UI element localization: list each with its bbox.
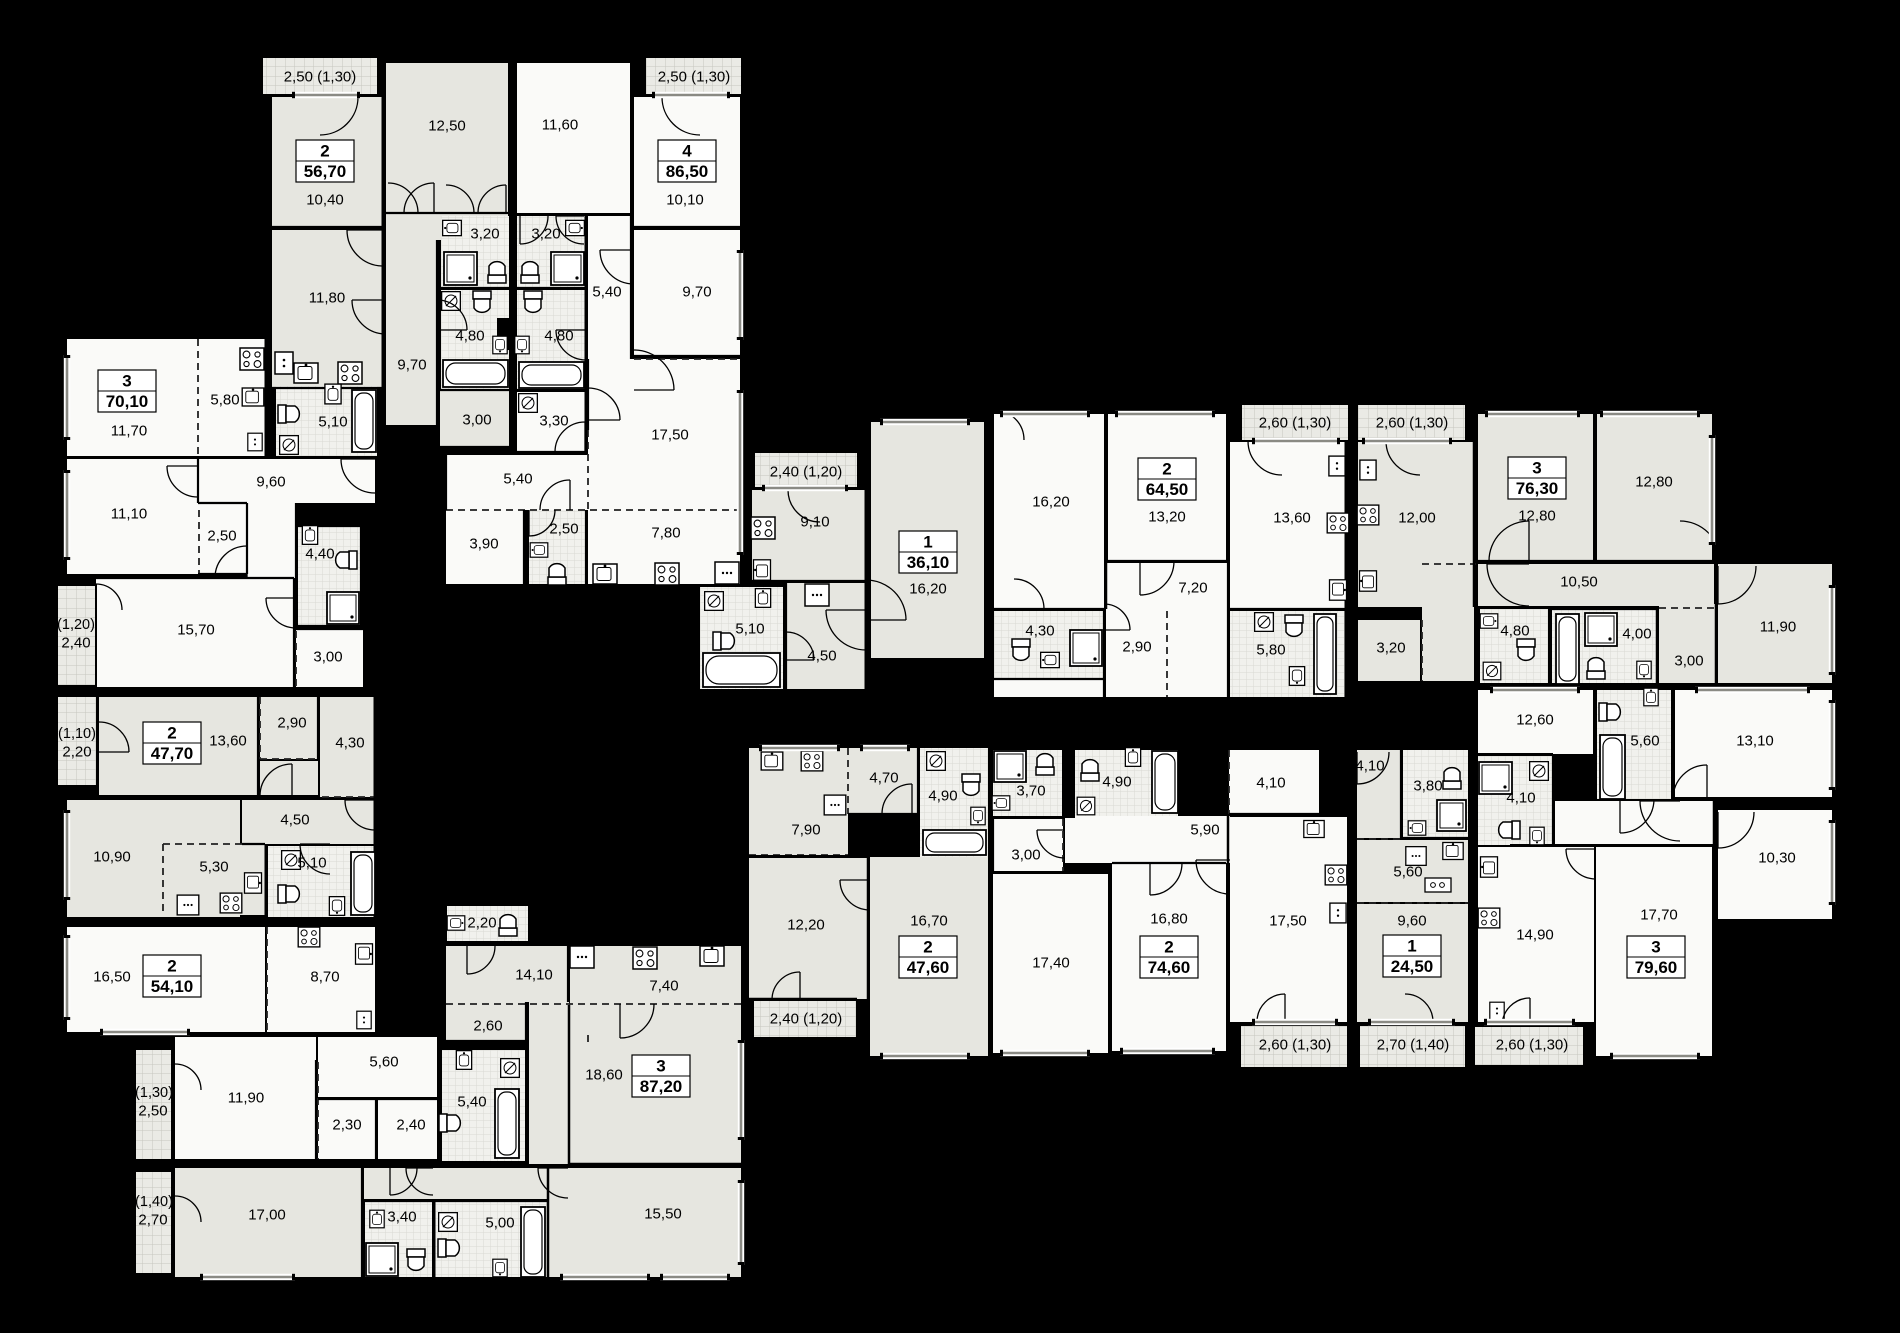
- svg-text:64,50: 64,50: [1146, 480, 1189, 499]
- svg-text:87,20: 87,20: [640, 1077, 683, 1096]
- svg-text:5,10: 5,10: [735, 620, 764, 637]
- svg-text:2: 2: [1164, 938, 1173, 957]
- svg-text:9,60: 9,60: [256, 473, 285, 490]
- svg-text:2,50 (1,30): 2,50 (1,30): [658, 68, 731, 85]
- svg-text:12,80: 12,80: [1635, 473, 1673, 490]
- svg-text:4,50: 4,50: [280, 811, 309, 828]
- svg-text:17,70: 17,70: [1640, 906, 1678, 923]
- svg-text:79,60: 79,60: [1635, 958, 1678, 977]
- svg-text:2: 2: [167, 724, 176, 743]
- svg-text:5,10: 5,10: [297, 854, 326, 871]
- svg-text:86,50: 86,50: [666, 162, 709, 181]
- svg-text:17,50: 17,50: [1269, 912, 1307, 929]
- svg-text:5,60: 5,60: [1393, 863, 1422, 880]
- svg-text:(1,40): (1,40): [135, 1194, 173, 1210]
- svg-text:11,80: 11,80: [309, 289, 345, 306]
- svg-text:(1,20): (1,20): [57, 617, 95, 633]
- svg-text:3,20: 3,20: [531, 225, 560, 242]
- svg-text:2: 2: [1162, 460, 1171, 479]
- svg-text:5,90: 5,90: [1190, 821, 1219, 838]
- svg-text:12,00: 12,00: [1398, 509, 1436, 526]
- svg-text:12,80: 12,80: [1518, 507, 1556, 524]
- svg-text:5,10: 5,10: [318, 413, 347, 430]
- svg-text:15,50: 15,50: [644, 1205, 682, 1222]
- svg-text:2,20: 2,20: [62, 743, 91, 760]
- svg-text:12,60: 12,60: [1516, 711, 1554, 728]
- svg-text:2,40: 2,40: [396, 1116, 425, 1133]
- svg-text:2,60 (1,30): 2,60 (1,30): [1496, 1036, 1569, 1053]
- svg-text:12,50: 12,50: [428, 117, 466, 134]
- svg-text:10,10: 10,10: [666, 191, 704, 208]
- svg-text:2,60: 2,60: [473, 1017, 502, 1034]
- svg-text:4,10: 4,10: [1506, 789, 1535, 806]
- svg-text:10,30: 10,30: [1758, 849, 1796, 866]
- svg-text:3,00: 3,00: [462, 411, 491, 428]
- svg-text:4: 4: [682, 142, 692, 161]
- svg-text:13,20: 13,20: [1148, 508, 1186, 525]
- svg-text:17,40: 17,40: [1032, 954, 1070, 971]
- svg-text:3: 3: [122, 372, 131, 391]
- svg-text:24,50: 24,50: [1391, 957, 1434, 976]
- svg-text:9,60: 9,60: [1397, 912, 1426, 929]
- svg-text:7,90: 7,90: [791, 821, 820, 838]
- svg-text:3,90: 3,90: [469, 535, 498, 552]
- svg-text:4,30: 4,30: [335, 734, 364, 751]
- svg-text:2,90: 2,90: [277, 714, 306, 731]
- svg-text:8,70: 8,70: [310, 968, 339, 985]
- svg-text:2,50: 2,50: [207, 527, 236, 544]
- svg-text:4,10: 4,10: [1256, 774, 1285, 791]
- svg-text:11,70: 11,70: [111, 422, 147, 439]
- svg-text:17,00: 17,00: [248, 1206, 286, 1223]
- svg-text:3,20: 3,20: [470, 225, 499, 242]
- svg-text:3,00: 3,00: [313, 648, 342, 665]
- svg-text:4,50: 4,50: [807, 647, 836, 664]
- svg-text:3,00: 3,00: [1674, 652, 1703, 669]
- svg-text:2,20: 2,20: [467, 914, 496, 931]
- svg-text:13,60: 13,60: [209, 732, 247, 749]
- svg-text:2,40: 2,40: [61, 634, 90, 651]
- svg-text:76,30: 76,30: [1516, 479, 1559, 498]
- svg-text:9,70: 9,70: [397, 356, 426, 373]
- svg-text:(1,30): (1,30): [135, 1085, 173, 1101]
- svg-text:17,50: 17,50: [651, 426, 689, 443]
- svg-text:3: 3: [656, 1057, 665, 1076]
- svg-text:2,50 (1,30): 2,50 (1,30): [284, 68, 357, 85]
- svg-text:9,70: 9,70: [682, 283, 711, 300]
- svg-text:2: 2: [167, 957, 176, 976]
- svg-text:16,70: 16,70: [910, 912, 948, 929]
- svg-text:3,30: 3,30: [539, 412, 568, 429]
- svg-text:5,40: 5,40: [503, 470, 532, 487]
- svg-text:16,80: 16,80: [1150, 910, 1188, 927]
- svg-text:4,40: 4,40: [305, 545, 334, 562]
- svg-text:3,80: 3,80: [1413, 777, 1442, 794]
- svg-text:3,20: 3,20: [1376, 639, 1405, 656]
- svg-text:5,80: 5,80: [1256, 641, 1285, 658]
- svg-text:4,70: 4,70: [869, 769, 898, 786]
- svg-text:4,90: 4,90: [1102, 773, 1131, 790]
- svg-text:5,00: 5,00: [485, 1214, 514, 1231]
- svg-text:13,10: 13,10: [1736, 732, 1774, 749]
- svg-text:2,90: 2,90: [1122, 638, 1151, 655]
- svg-text:10,50: 10,50: [1560, 573, 1598, 590]
- svg-text:2: 2: [923, 938, 932, 957]
- svg-text:4,80: 4,80: [1500, 622, 1529, 639]
- svg-text:5,60: 5,60: [369, 1053, 398, 1070]
- svg-text:2,30: 2,30: [332, 1116, 361, 1133]
- svg-text:5,60: 5,60: [1630, 732, 1659, 749]
- svg-text:74,60: 74,60: [1148, 958, 1191, 977]
- svg-text:18,60: 18,60: [585, 1066, 623, 1083]
- svg-text:11,90: 11,90: [1760, 618, 1796, 635]
- svg-text:2,40 (1,20): 2,40 (1,20): [770, 463, 843, 480]
- svg-text:3,70: 3,70: [1016, 782, 1045, 799]
- svg-text:16,50: 16,50: [93, 968, 131, 985]
- svg-text:11,10: 11,10: [111, 505, 147, 522]
- svg-text:4,80: 4,80: [455, 327, 484, 344]
- svg-text:4,80: 4,80: [544, 327, 573, 344]
- svg-text:7,40: 7,40: [649, 977, 678, 994]
- svg-text:16,20: 16,20: [909, 580, 947, 597]
- svg-text:5,40: 5,40: [457, 1093, 486, 1110]
- svg-text:2,60 (1,30): 2,60 (1,30): [1259, 1036, 1332, 1053]
- svg-text:16,20: 16,20: [1032, 493, 1070, 510]
- svg-text:10,90: 10,90: [93, 848, 131, 865]
- svg-text:4,90: 4,90: [928, 787, 957, 804]
- svg-text:3: 3: [1651, 938, 1660, 957]
- svg-text:70,10: 70,10: [106, 392, 149, 411]
- svg-text:2,60 (1,30): 2,60 (1,30): [1259, 414, 1332, 431]
- svg-text:13,60: 13,60: [1273, 509, 1311, 526]
- svg-text:7,20: 7,20: [1178, 579, 1207, 596]
- svg-text:14,90: 14,90: [1516, 926, 1554, 943]
- svg-text:9,10: 9,10: [800, 513, 829, 530]
- svg-text:5,30: 5,30: [199, 858, 228, 875]
- svg-text:11,60: 11,60: [542, 116, 578, 133]
- svg-text:54,10: 54,10: [151, 977, 194, 996]
- svg-text:2,70 (1,40): 2,70 (1,40): [1377, 1036, 1450, 1053]
- svg-text:4,30: 4,30: [1025, 622, 1054, 639]
- svg-text:3,40: 3,40: [387, 1208, 416, 1225]
- svg-text:2: 2: [320, 142, 329, 161]
- svg-text:1: 1: [923, 533, 932, 552]
- svg-text:12,20: 12,20: [787, 916, 825, 933]
- svg-text:10,40: 10,40: [306, 191, 344, 208]
- svg-text:5,40: 5,40: [592, 283, 621, 300]
- svg-text:3,00: 3,00: [1011, 846, 1040, 863]
- svg-text:7,80: 7,80: [651, 524, 680, 541]
- svg-text:1: 1: [1407, 937, 1416, 956]
- svg-text:5,80: 5,80: [210, 391, 239, 408]
- svg-text:2,70: 2,70: [138, 1211, 167, 1228]
- svg-text:(1,10): (1,10): [58, 726, 96, 742]
- svg-text:47,70: 47,70: [151, 744, 194, 763]
- svg-text:2,50: 2,50: [138, 1102, 167, 1119]
- svg-text:4,10: 4,10: [1355, 757, 1384, 774]
- svg-text:4,00: 4,00: [1622, 625, 1651, 642]
- svg-text:15,70: 15,70: [177, 621, 215, 638]
- svg-text:2,50: 2,50: [549, 520, 578, 537]
- svg-text:47,60: 47,60: [907, 958, 950, 977]
- svg-text:14,10: 14,10: [515, 966, 553, 983]
- svg-text:3: 3: [1532, 459, 1541, 478]
- svg-text:2,40 (1,20): 2,40 (1,20): [770, 1010, 843, 1027]
- svg-text:56,70: 56,70: [304, 162, 347, 181]
- svg-text:11,90: 11,90: [228, 1089, 264, 1106]
- svg-text:2,60 (1,30): 2,60 (1,30): [1376, 414, 1449, 431]
- svg-text:36,10: 36,10: [907, 553, 950, 572]
